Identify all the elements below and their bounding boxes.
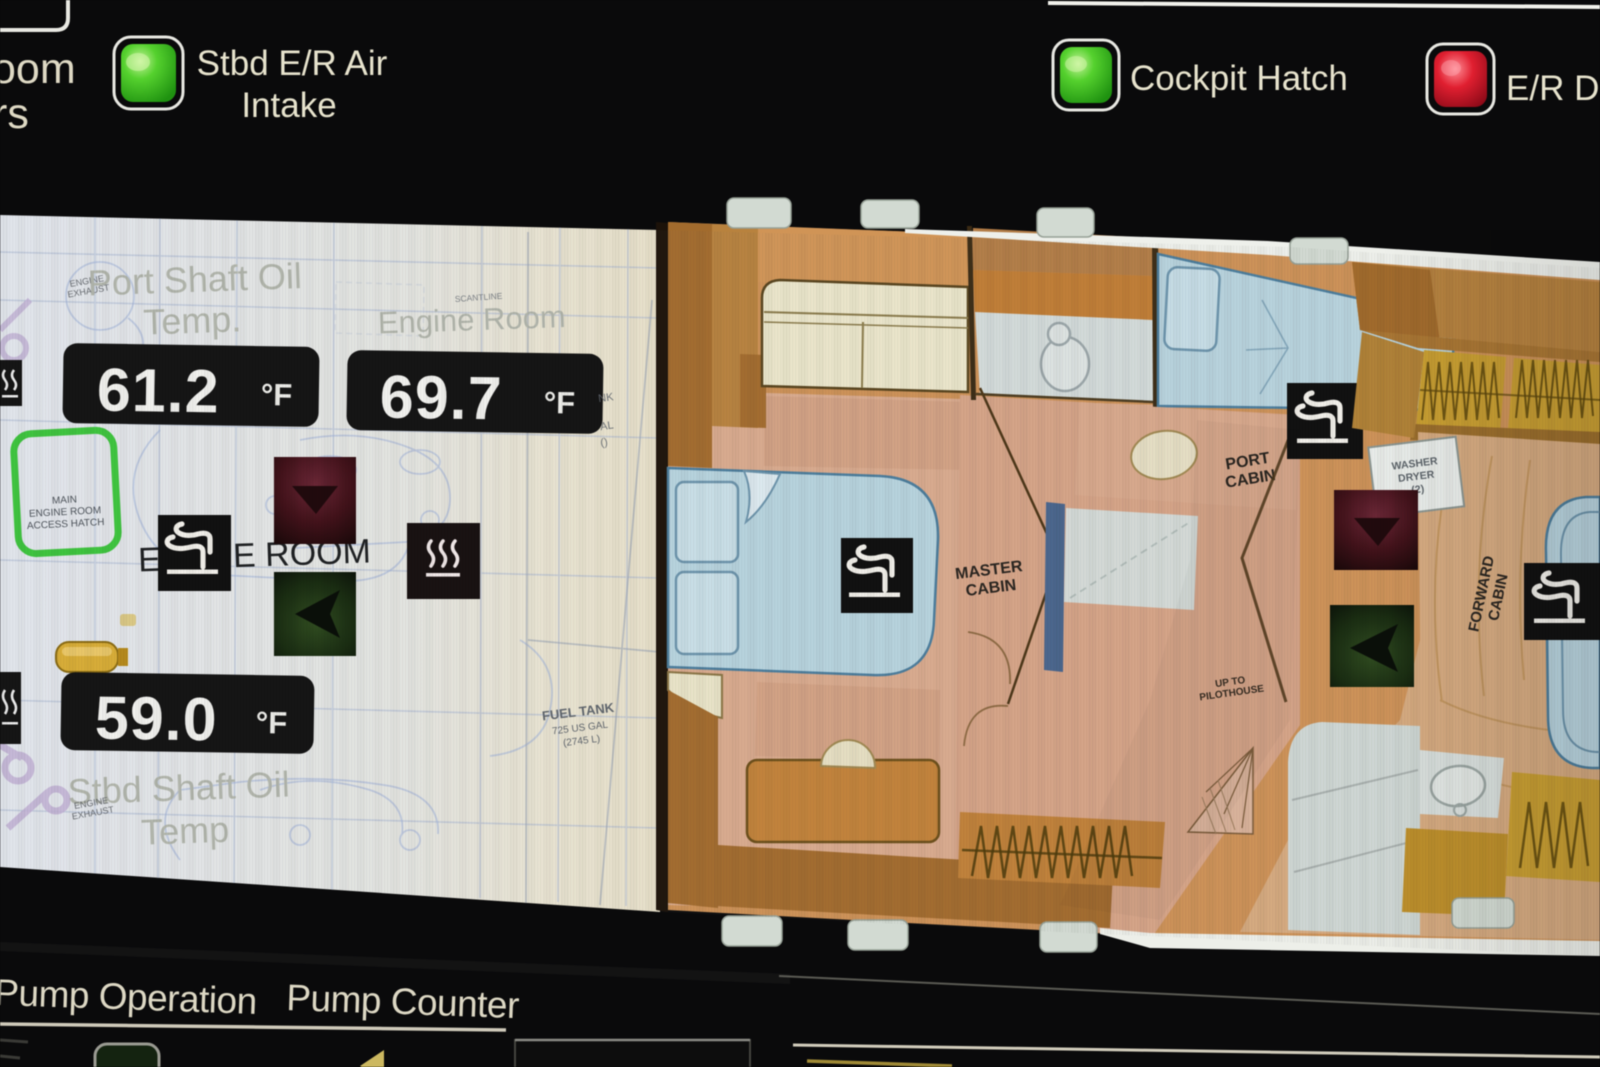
svg-text:rs: rs	[0, 90, 29, 138]
svg-text:E/R D: E/R D	[1506, 69, 1599, 108]
svg-text:Pump Counter: Pump Counter	[286, 977, 520, 1026]
svg-text:Intake: Intake	[241, 86, 336, 125]
svg-text:oom: oom	[0, 45, 76, 93]
svg-text:Stbd E/R Air: Stbd E/R Air	[197, 44, 388, 83]
svg-text:Cockpit Hatch: Cockpit Hatch	[1130, 59, 1348, 98]
